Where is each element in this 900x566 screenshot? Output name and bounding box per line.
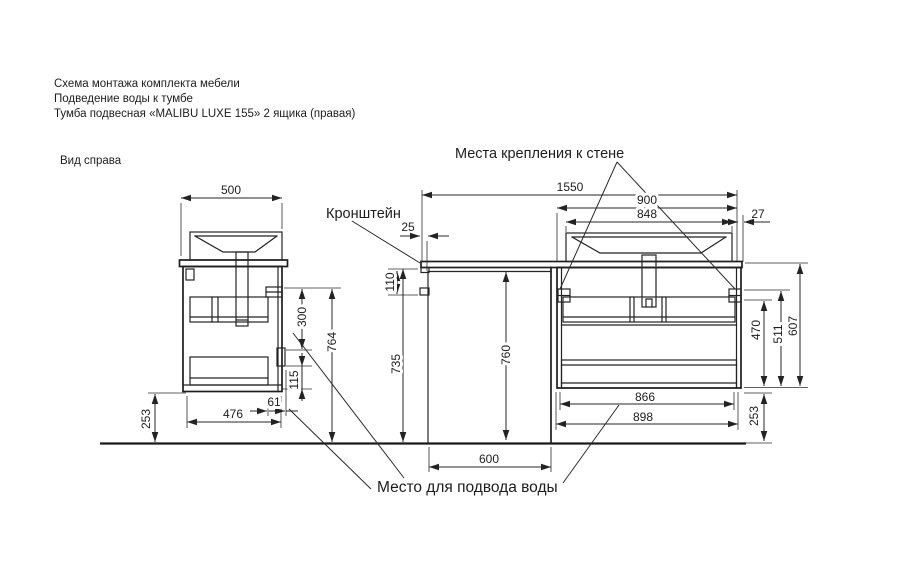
side-view-outline [180, 232, 288, 392]
dim-764-label: 764 [325, 332, 339, 352]
dim-900-label: 900 [637, 193, 657, 207]
dim-27-label: 27 [751, 207, 765, 221]
bracket-label: Кронштейн [326, 206, 401, 222]
dim-735-label: 735 [389, 354, 403, 374]
dim-600-label: 600 [479, 452, 499, 466]
title-line-3: Тумба подвесная «MALIBU LUXE 155» 2 ящик… [54, 108, 356, 120]
dim-253-front-label: 253 [747, 406, 761, 426]
dim-500-label: 500 [221, 183, 241, 197]
view-label-right-side: Вид справа [60, 155, 122, 167]
dim-866-label: 866 [635, 390, 655, 404]
title-line-2: Подведение воды к тумбе [54, 93, 193, 105]
dim-511-label: 511 [771, 324, 785, 343]
dim-61-label: 61 [267, 395, 281, 409]
dim-898-label: 898 [633, 410, 653, 424]
dim-300-label: 300 [295, 307, 309, 327]
dim-25-label: 25 [401, 220, 415, 234]
front-view-outline [420, 233, 742, 443]
dim-110-label: 110 [383, 272, 397, 291]
dim-253-side-label: 253 [139, 409, 153, 429]
dim-476-label: 476 [223, 407, 243, 421]
dim-115-label: 115 [287, 370, 301, 389]
dim-607-label: 607 [786, 316, 800, 336]
drawing-title-block: Схема монтажа комплекта мебели Подведени… [54, 78, 356, 167]
dim-1550-label: 1550 [557, 180, 584, 194]
title-line-1: Схема монтажа комплекта мебели [54, 78, 240, 90]
installation-drawing-page: Схема монтажа комплекта мебели Подведени… [0, 0, 900, 566]
water-supply-label: Место для подвода воды [377, 479, 558, 496]
technical-drawing-canvas: Схема монтажа комплекта мебели Подведени… [0, 0, 900, 566]
dim-760-label: 760 [499, 345, 513, 365]
dim-848-label: 848 [637, 207, 657, 221]
dim-470-label: 470 [749, 320, 763, 340]
wall-mount-points-label: Места крепления к стене [455, 146, 624, 162]
